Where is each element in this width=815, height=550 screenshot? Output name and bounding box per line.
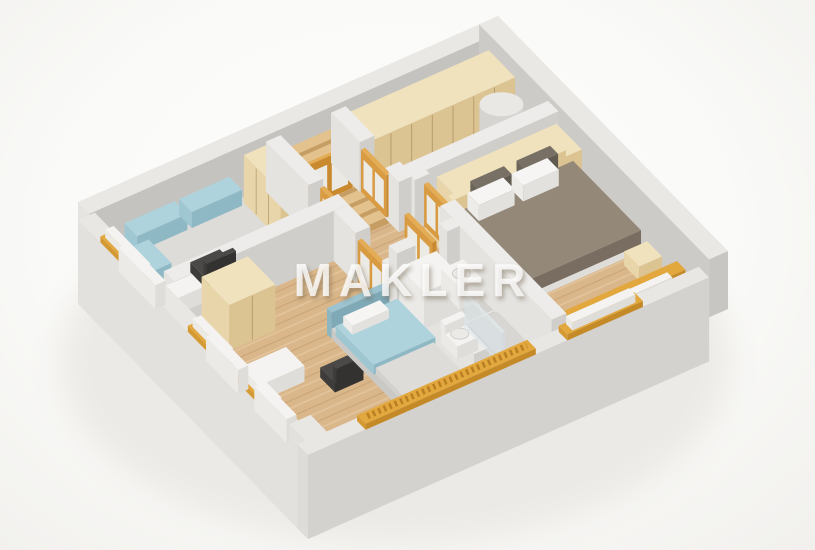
- watermark-text: MAKLER: [294, 253, 533, 307]
- floorplan-3d-render: MAKLER: [0, 0, 815, 550]
